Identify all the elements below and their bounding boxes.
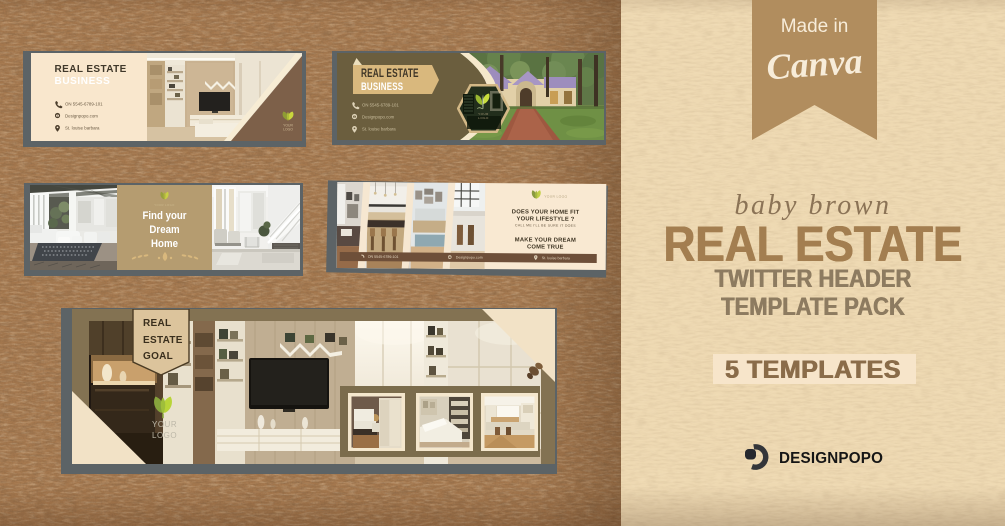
svg-text:St. louise barbara: St. louise barbara <box>65 125 100 130</box>
svg-text:Designpopo.com: Designpopo.com <box>65 113 98 118</box>
svg-text:Made in: Made in <box>781 16 849 37</box>
svg-text:Designpopo.com: Designpopo.com <box>456 255 483 259</box>
svg-text:LOGO: LOGO <box>478 116 489 120</box>
svg-text:ON 5545-6789-101: ON 5545-6789-101 <box>368 255 399 259</box>
svg-text:Canva: Canva <box>765 41 864 88</box>
svg-text:ON 5545-6789-101: ON 5545-6789-101 <box>362 102 399 107</box>
svg-text:LOGO: LOGO <box>283 128 293 132</box>
svg-text:St. louise barbara: St. louise barbara <box>362 126 396 131</box>
svg-text:Designpopo.com: Designpopo.com <box>362 114 395 119</box>
svg-text:ON 5545-6789-101: ON 5545-6789-101 <box>65 101 103 106</box>
svg-text:St. louise barbara: St. louise barbara <box>542 256 570 260</box>
